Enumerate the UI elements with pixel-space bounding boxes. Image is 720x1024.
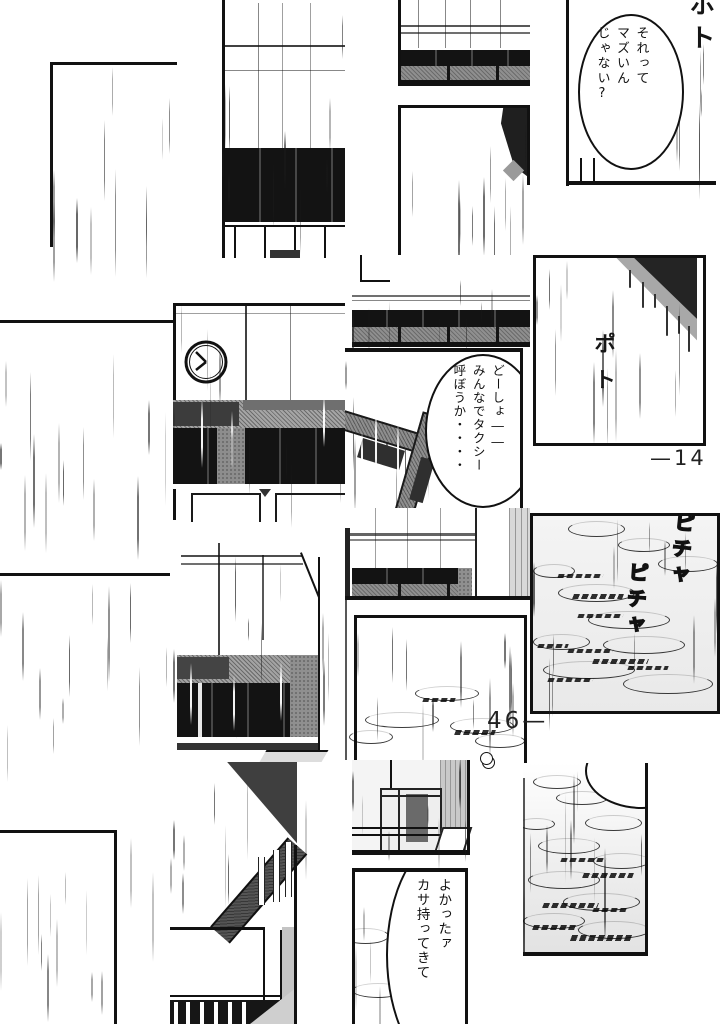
bline xyxy=(181,563,303,565)
rain-streak xyxy=(181,304,183,353)
rain-streak xyxy=(328,633,330,702)
rain-streak xyxy=(329,98,331,151)
rain-streak xyxy=(639,353,641,419)
scrib xyxy=(592,659,649,664)
rain-streak xyxy=(280,564,282,602)
rain-streak xyxy=(5,361,7,407)
bline xyxy=(465,868,468,1024)
wstreak xyxy=(231,411,233,469)
abs xyxy=(191,493,261,522)
abs xyxy=(666,306,668,336)
bline xyxy=(318,557,320,760)
glass-box xyxy=(380,788,442,852)
bline xyxy=(401,25,530,27)
rain-streak xyxy=(56,919,58,987)
bline xyxy=(234,227,236,258)
rain-streak xyxy=(27,878,29,966)
bline xyxy=(352,868,468,872)
rain-streak xyxy=(714,598,716,657)
bline xyxy=(352,827,438,829)
abs xyxy=(285,842,292,897)
scrib xyxy=(557,574,603,578)
abs xyxy=(270,250,300,258)
rain-streak xyxy=(357,633,359,677)
rain-streak xyxy=(560,284,562,342)
bline xyxy=(181,555,303,557)
bline xyxy=(350,539,478,541)
rain-streak xyxy=(33,434,35,528)
abs xyxy=(200,1002,204,1024)
rain-streak xyxy=(675,370,677,417)
rain-streak xyxy=(323,660,325,726)
rain-streak xyxy=(504,633,506,669)
rain-streak xyxy=(137,476,139,560)
rain-streak xyxy=(63,460,65,506)
bline xyxy=(407,508,408,568)
rain-streak xyxy=(352,771,354,812)
rain-streak xyxy=(459,199,461,245)
panel-bottom-building xyxy=(170,762,297,1024)
scrib xyxy=(570,935,632,941)
bline xyxy=(360,255,362,280)
rain-streak xyxy=(162,118,164,160)
entrance-steps xyxy=(260,750,329,762)
bline xyxy=(345,596,530,600)
speech-text: どーしょ―― みんなでタクシー 呼ぼうか・・・・ xyxy=(449,364,507,502)
rain-streak xyxy=(460,280,462,306)
rain-streak xyxy=(112,67,114,116)
panel-midleft-rain xyxy=(0,320,175,540)
rain-streak xyxy=(700,50,702,118)
bline xyxy=(566,0,569,186)
abs xyxy=(228,1002,232,1024)
bline xyxy=(593,158,595,182)
page-number-right: —14 xyxy=(650,446,707,470)
bline xyxy=(170,995,280,997)
scrib xyxy=(537,644,568,648)
wstreak xyxy=(233,675,235,731)
bline xyxy=(398,105,530,108)
wstreak xyxy=(190,663,192,725)
bline xyxy=(264,227,266,258)
rain-streak xyxy=(494,206,496,258)
abs xyxy=(509,508,530,600)
panel-umbrella-bubble: よかったァ カサ持ってきて xyxy=(352,868,468,1024)
rain-streak xyxy=(90,207,92,275)
scrib xyxy=(572,594,624,599)
bline xyxy=(0,830,117,833)
scrib xyxy=(592,908,628,912)
panel-bottomleft-rain xyxy=(0,830,117,1024)
abs xyxy=(214,1002,218,1024)
bline xyxy=(580,158,582,182)
panel-lowerleft-rain xyxy=(0,573,170,788)
bline xyxy=(352,834,448,836)
bline xyxy=(352,868,355,1024)
bline xyxy=(352,342,530,347)
drop xyxy=(305,800,307,880)
rain-streak xyxy=(0,580,2,637)
scrib xyxy=(422,698,455,702)
panel-window-strip-3 xyxy=(345,508,530,600)
rain-streak xyxy=(183,835,185,871)
drop-ring xyxy=(480,752,493,765)
pud xyxy=(623,674,713,694)
panel-top-building-strip xyxy=(222,0,345,258)
panel-taxi-bubble: どーしょ―― みんなでタクシー 呼ぼうか・・・・ xyxy=(345,348,523,510)
rain-streak xyxy=(505,178,507,231)
abs xyxy=(382,795,440,797)
panel-bottomright-puddles xyxy=(523,763,648,956)
rain-streak xyxy=(53,718,55,754)
bline xyxy=(245,306,247,400)
rain-streak xyxy=(228,854,230,905)
rain-streak xyxy=(170,858,172,894)
abs xyxy=(177,657,229,679)
pud xyxy=(568,521,625,537)
bline xyxy=(310,3,311,148)
rain-streak xyxy=(182,873,184,914)
rain-streak xyxy=(115,169,117,277)
rain-streak xyxy=(107,637,109,691)
abs xyxy=(352,327,530,343)
rain-streak xyxy=(693,615,695,684)
abs xyxy=(273,850,280,902)
panel-building-corner xyxy=(173,543,348,760)
rain-streak xyxy=(510,206,512,258)
scrib xyxy=(577,614,623,618)
rain-streak xyxy=(342,15,344,59)
rain-streak xyxy=(716,559,718,634)
bline xyxy=(352,850,470,855)
rain-streak xyxy=(555,329,557,396)
bline xyxy=(445,0,446,48)
rain-streak xyxy=(47,954,49,1022)
abs xyxy=(458,568,472,597)
rain-streak xyxy=(169,98,171,154)
rain-streak xyxy=(483,177,485,256)
rain-streak xyxy=(235,556,237,622)
rain-streak xyxy=(173,820,175,860)
rain-streak xyxy=(104,120,106,201)
rain-streak xyxy=(353,397,355,471)
rain-streak xyxy=(53,170,55,238)
bline xyxy=(225,70,345,71)
clock-icon xyxy=(183,339,229,385)
sfx-picha-b: ピチャ xyxy=(618,561,652,641)
rain-streak xyxy=(458,180,460,258)
rain-streak xyxy=(7,725,9,782)
bline xyxy=(170,927,263,930)
rain-streak xyxy=(613,546,615,589)
scrib xyxy=(567,649,613,653)
rain-streak xyxy=(146,186,148,247)
abs xyxy=(275,493,347,522)
wstreak xyxy=(323,395,325,447)
rain-streak xyxy=(229,86,231,154)
bline xyxy=(401,32,530,34)
rain-streak xyxy=(214,783,216,825)
bline xyxy=(398,80,530,86)
rain-streak xyxy=(41,934,43,971)
bline xyxy=(500,0,501,48)
rain-streak xyxy=(699,103,701,189)
rain-streak xyxy=(173,649,175,703)
panel-topleft-rain xyxy=(50,62,177,252)
wstreak xyxy=(201,398,203,468)
abs xyxy=(177,743,318,750)
bline xyxy=(566,181,716,185)
bline xyxy=(352,300,530,301)
panel-picha-puddles: ピチャ ピチャ xyxy=(530,513,720,714)
bline xyxy=(467,760,470,855)
rain-streak xyxy=(139,667,141,746)
scrib xyxy=(547,678,593,682)
abs xyxy=(642,282,644,308)
pud xyxy=(533,775,581,789)
rain-streak xyxy=(354,438,356,510)
rain-streak xyxy=(101,971,103,1015)
pud xyxy=(349,730,393,744)
bline xyxy=(345,348,523,352)
bline xyxy=(258,3,259,148)
bline xyxy=(262,555,264,640)
bline xyxy=(523,778,525,956)
abs xyxy=(198,683,202,737)
rain-streak xyxy=(392,627,394,683)
rain-streak xyxy=(701,89,703,117)
abs xyxy=(173,402,239,426)
rain-streak xyxy=(65,872,67,905)
bline xyxy=(50,62,177,65)
bline xyxy=(114,830,117,1024)
rain-streak xyxy=(113,354,115,438)
rain-streak xyxy=(699,113,701,200)
pud xyxy=(538,838,600,854)
scrib xyxy=(532,925,579,930)
rain-streak xyxy=(322,613,324,673)
panel-topright-building-strip xyxy=(398,0,530,86)
rain-streak xyxy=(22,612,24,681)
rain-streak xyxy=(345,361,347,390)
dark-window-band xyxy=(225,148,345,222)
pud xyxy=(475,734,525,748)
rain-streak xyxy=(53,202,55,282)
abs xyxy=(398,790,400,850)
sfx-poto-top: ポト xyxy=(682,0,719,58)
bline xyxy=(0,320,175,323)
bline xyxy=(352,295,530,297)
scrib xyxy=(560,858,606,862)
bline xyxy=(290,306,291,400)
abs xyxy=(678,316,680,334)
rain-streak xyxy=(165,412,167,506)
rain-streak xyxy=(166,647,168,687)
rain-streak xyxy=(83,427,85,500)
rain-streak xyxy=(58,423,60,503)
bline xyxy=(50,62,53,247)
bline xyxy=(440,508,441,568)
rain-streak xyxy=(76,198,78,263)
bline xyxy=(282,3,283,148)
rain-streak xyxy=(370,940,372,983)
panel-clock-building xyxy=(173,303,345,520)
scrib xyxy=(582,873,634,878)
bline xyxy=(0,573,170,576)
abs xyxy=(401,66,530,80)
scrib xyxy=(627,666,668,670)
panel-structure xyxy=(352,760,470,855)
rain-streak xyxy=(362,795,364,836)
abs xyxy=(629,270,631,288)
abs xyxy=(174,1002,178,1024)
wstreak xyxy=(361,432,363,490)
rain-streak xyxy=(108,586,110,682)
bline xyxy=(218,543,220,657)
rain-streak xyxy=(45,473,47,553)
pud xyxy=(585,815,642,831)
bline xyxy=(360,280,390,282)
bline xyxy=(470,0,471,48)
rain-streak xyxy=(522,174,524,245)
abs xyxy=(186,1002,190,1024)
rain-streak xyxy=(490,146,492,203)
panel-midright-rain xyxy=(398,105,530,258)
rain-streak xyxy=(412,171,414,217)
bline xyxy=(520,348,523,510)
drop xyxy=(152,872,154,962)
rain-streak xyxy=(30,372,32,461)
abs xyxy=(440,760,470,830)
bline xyxy=(398,105,401,258)
rain-streak xyxy=(549,269,551,310)
rain-streak xyxy=(69,635,71,697)
rain-streak xyxy=(406,639,408,691)
rain-streak xyxy=(91,972,93,1002)
abs xyxy=(688,326,690,352)
rain-streak xyxy=(432,697,434,732)
rain-streak xyxy=(0,912,2,991)
umbrella-silhouette xyxy=(398,105,530,258)
bline xyxy=(324,227,326,258)
speech-text: それって マズいん じゃない? xyxy=(592,26,651,151)
scrib xyxy=(542,903,599,908)
rain-streak xyxy=(92,584,94,625)
panel-building-strip-2 xyxy=(352,255,530,347)
bline xyxy=(263,927,265,1002)
bline xyxy=(173,303,345,306)
pud xyxy=(365,712,439,728)
rain-streak xyxy=(24,475,26,551)
speech-text: よかったァ カサ持ってきて xyxy=(410,878,453,1020)
wstreak xyxy=(375,410,377,480)
rain-streak xyxy=(472,206,474,246)
rain-streak xyxy=(38,875,40,955)
abs xyxy=(654,294,656,308)
bline xyxy=(350,533,478,536)
sfx-poto-mid: ポト xyxy=(586,332,618,404)
rain-streak xyxy=(248,618,250,641)
drop xyxy=(130,838,132,908)
rain-streak xyxy=(50,894,52,937)
bline xyxy=(527,105,530,185)
rain-streak xyxy=(130,583,132,643)
abs xyxy=(173,484,345,489)
panel-umbrella-drip: ポト xyxy=(533,255,706,446)
bline xyxy=(176,313,345,314)
manga-page: それって マズいん じゃない? ポト ポト —14 xyxy=(0,0,720,1024)
rain-streak xyxy=(225,825,227,909)
bline xyxy=(645,763,649,956)
bline xyxy=(225,45,345,47)
rain-streak xyxy=(86,890,88,955)
dark-window-band xyxy=(173,428,345,484)
pud xyxy=(618,538,670,552)
abs xyxy=(243,400,345,410)
abs xyxy=(242,1002,246,1024)
bline xyxy=(225,225,345,227)
rain-streak xyxy=(93,479,95,541)
abs xyxy=(258,857,265,905)
abs xyxy=(300,552,320,597)
sfx-picha-a: ピチャ xyxy=(662,511,699,592)
panel-mid-puddles xyxy=(354,615,527,771)
rain-streak xyxy=(39,668,41,720)
rain-streak xyxy=(536,295,538,325)
rain-streak xyxy=(0,443,2,470)
bline xyxy=(418,0,419,48)
rain-streak xyxy=(148,400,150,455)
rain-streak xyxy=(62,698,64,724)
wstreak xyxy=(397,422,399,502)
wstreak xyxy=(280,661,282,721)
bline xyxy=(375,508,376,568)
white-pillar xyxy=(475,508,511,600)
rain-streak xyxy=(355,946,357,1011)
rain-streak xyxy=(146,201,148,278)
rain-streak xyxy=(566,261,568,300)
bline xyxy=(294,845,297,1024)
bline xyxy=(523,952,648,956)
